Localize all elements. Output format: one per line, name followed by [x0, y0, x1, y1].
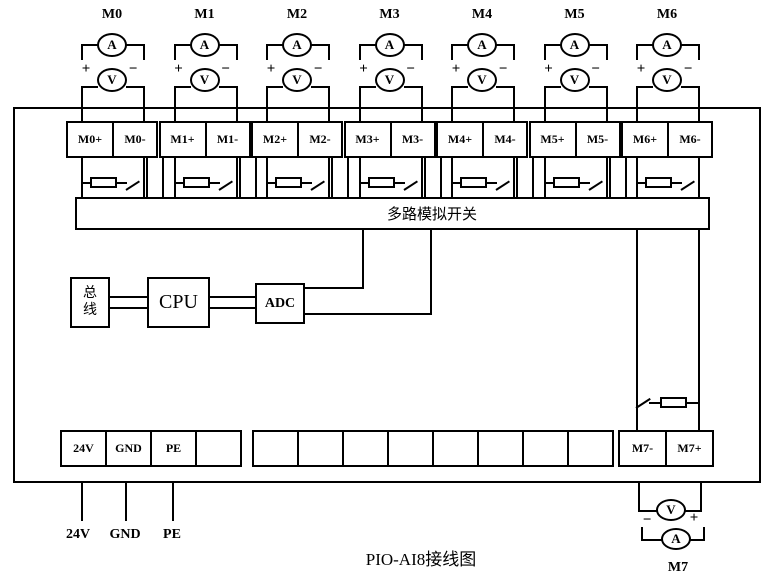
ammeter-icon: A: [375, 33, 405, 57]
terminal-plus: M0+: [66, 121, 114, 158]
ammeter-stub-left: [81, 44, 83, 60]
spare-terminal: [522, 430, 569, 467]
terminal-plus: M6+: [621, 121, 669, 158]
channel-label: M1: [175, 7, 235, 23]
adc-mux-wire-1-horizontal: [303, 287, 364, 289]
bus-cpu-wire-bottom: [110, 307, 149, 309]
wire-minus-upper: [328, 86, 330, 123]
ammeter-lead-left: [81, 44, 98, 46]
m7-ammeter-stub-right: [703, 527, 705, 541]
resistor-lead-right: [487, 182, 497, 184]
terminal-plus: M5+: [529, 121, 577, 158]
wire-minus-lower: [606, 158, 608, 199]
ammeter-lead-right: [126, 44, 143, 46]
terminal-minus: M3-: [390, 121, 436, 158]
ammeter-stub-right: [143, 44, 145, 60]
resistor-lead-left: [81, 182, 90, 184]
voltmeter-lead-right: [496, 86, 513, 88]
ammeter-stub-right: [328, 44, 330, 60]
wire-plus-lower: [81, 158, 83, 199]
power-label-24v: 24V: [58, 527, 98, 543]
power-terminal: PE: [150, 430, 197, 467]
voltmeter-lead-right: [126, 86, 143, 88]
wire-minus-upper: [236, 86, 238, 123]
wire-plus-lower: [359, 158, 361, 199]
ammeter-icon: A: [560, 33, 590, 57]
m7-resistor-icon: [660, 397, 687, 408]
adc-box: ADC: [255, 283, 305, 324]
resistor-lead-right: [395, 182, 405, 184]
resistor-icon: [553, 177, 580, 188]
ammeter-stub-left: [266, 44, 268, 60]
minus-sign: −: [309, 62, 327, 77]
terminal-plus: M2+: [251, 121, 299, 158]
spare-terminal: [252, 430, 299, 467]
wire-minus-lower: [328, 158, 330, 199]
voltmeter-lead-left: [636, 86, 653, 88]
ammeter-lead-right: [589, 44, 606, 46]
ammeter-lead-right: [311, 44, 328, 46]
minus-sign: −: [494, 62, 512, 77]
adc-mux-wire-1-vertical: [362, 228, 364, 289]
device-outline: [13, 107, 761, 483]
wire-24v: [81, 483, 83, 521]
ammeter-lead-left: [266, 44, 283, 46]
ammeter-stub-left: [174, 44, 176, 60]
power-label-pe: PE: [152, 527, 192, 543]
terminal-minus: M0-: [112, 121, 158, 158]
terminal-m7-plus: M7+: [665, 430, 714, 467]
wire-plus-upper: [174, 86, 176, 123]
channel-label-m7: M7: [656, 560, 700, 576]
power-terminal: GND: [105, 430, 152, 467]
adc-mux-wire-2-horizontal: [303, 313, 432, 315]
wire-plus-lower: [636, 158, 638, 199]
spacer-column-right: [625, 158, 627, 197]
cpu-adc-wire-bottom: [208, 307, 257, 309]
ammeter-lead-right: [404, 44, 421, 46]
resistor-icon: [183, 177, 210, 188]
wire-minus-upper: [143, 86, 145, 123]
terminal-plus: M4+: [436, 121, 484, 158]
ammeter-stub-left: [359, 44, 361, 60]
m7-ext-wire-minus: [638, 483, 640, 512]
channel-label: M6: [637, 7, 697, 23]
plus-sign: +: [447, 62, 465, 77]
ammeter-stub-right: [606, 44, 608, 60]
terminal-m7-minus: M7-: [618, 430, 667, 467]
wire-plus-lower: [174, 158, 176, 199]
resistor-icon: [90, 177, 117, 188]
wire-minus-lower: [236, 158, 238, 199]
cpu-adc-wire-top: [208, 296, 257, 298]
wire-minus-lower: [513, 158, 515, 199]
resistor-lead-left: [451, 182, 460, 184]
voltmeter-icon: V: [97, 68, 127, 92]
wire-gnd: [125, 483, 127, 521]
spare-terminal: [297, 430, 344, 467]
spacer-column-left: [424, 158, 426, 197]
resistor-lead-left: [636, 182, 645, 184]
voltmeter-lead-left: [359, 86, 376, 88]
terminal-minus: M1-: [205, 121, 251, 158]
voltmeter-icon: V: [560, 68, 590, 92]
voltmeter-icon: V: [282, 68, 312, 92]
mux-label: 多路模拟开关: [282, 203, 582, 224]
resistor-icon: [645, 177, 672, 188]
wire-minus-lower: [698, 158, 700, 199]
terminal-plus: M3+: [344, 121, 392, 158]
plus-sign: +: [77, 62, 95, 77]
voltmeter-icon: V: [375, 68, 405, 92]
wire-plus-upper: [266, 86, 268, 123]
ammeter-stub-left: [636, 44, 638, 60]
ammeter-lead-left: [174, 44, 191, 46]
channel-label: M0: [82, 7, 142, 23]
resistor-lead-right: [117, 182, 127, 184]
ammeter-icon: A: [282, 33, 312, 57]
spacer-column-right: [162, 158, 164, 197]
spacer-column-left: [516, 158, 518, 197]
m7-plus-sign: +: [687, 511, 701, 526]
terminal-minus: M5-: [575, 121, 621, 158]
m7-voltmeter-icon: V: [656, 499, 686, 521]
bus-cpu-wire-top: [110, 296, 149, 298]
voltmeter-lead-left: [81, 86, 98, 88]
m7-ext-wire-plus: [700, 483, 702, 512]
voltmeter-lead-left: [451, 86, 468, 88]
resistor-lead-left: [174, 182, 183, 184]
plus-sign: +: [262, 62, 280, 77]
wire-minus-upper: [606, 86, 608, 123]
power-terminal: [195, 430, 242, 467]
ammeter-stub-right: [698, 44, 700, 60]
wire-plus-lower: [544, 158, 546, 199]
resistor-lead-right: [672, 182, 682, 184]
wire-minus-lower: [421, 158, 423, 199]
channel-label: M5: [545, 7, 605, 23]
m7-resistor-lead-right: [686, 402, 700, 404]
adc-mux-wire-2-vertical: [430, 228, 432, 315]
wire-plus-lower: [266, 158, 268, 199]
ammeter-lead-left: [359, 44, 376, 46]
wire-plus-lower: [451, 158, 453, 199]
resistor-lead-right: [580, 182, 590, 184]
ammeter-stub-right: [513, 44, 515, 60]
spacer-column-right: [347, 158, 349, 197]
spacer-column-right: [532, 158, 534, 197]
resistor-icon: [368, 177, 395, 188]
spacer-column-left: [239, 158, 241, 197]
minus-sign: −: [402, 62, 420, 77]
spare-terminal: [567, 430, 614, 467]
spacer-column-left: [331, 158, 333, 197]
wire-minus-upper: [513, 86, 515, 123]
spacer-column-left: [146, 158, 148, 197]
ammeter-icon: A: [190, 33, 220, 57]
ammeter-icon: A: [467, 33, 497, 57]
plus-sign: +: [170, 62, 188, 77]
resistor-lead-right: [302, 182, 312, 184]
cpu-box: CPU: [147, 277, 210, 328]
ammeter-stub-right: [421, 44, 423, 60]
ammeter-icon: A: [97, 33, 127, 57]
spare-terminal: [477, 430, 524, 467]
spacer-column-left: [609, 158, 611, 197]
m7-ammeter-lead-left: [641, 539, 662, 541]
voltmeter-lead-right: [219, 86, 236, 88]
m7-minus-sign: −: [640, 513, 654, 528]
wiring-diagram: M0A+−VM0+M0-M1A+−VM1+M1-M2A+−VM2+M2-M3A+…: [0, 0, 782, 587]
voltmeter-lead-left: [544, 86, 561, 88]
ammeter-stub-right: [236, 44, 238, 60]
wire-plus-upper: [359, 86, 361, 123]
wire-plus-upper: [636, 86, 638, 123]
ammeter-stub-left: [451, 44, 453, 60]
voltmeter-lead-right: [404, 86, 421, 88]
voltmeter-lead-left: [174, 86, 191, 88]
power-label-gnd: GND: [105, 527, 145, 543]
ammeter-icon: A: [652, 33, 682, 57]
wire-plus-upper: [544, 86, 546, 123]
bus-box: 总线: [70, 277, 110, 328]
resistor-lead-right: [210, 182, 220, 184]
terminal-minus: M6-: [667, 121, 713, 158]
minus-sign: −: [217, 62, 235, 77]
ammeter-lead-right: [681, 44, 698, 46]
spacer-column-right: [440, 158, 442, 197]
m7-wire-minus: [636, 228, 638, 432]
plus-sign: +: [355, 62, 373, 77]
plus-sign: +: [632, 62, 650, 77]
channel-label: M3: [360, 7, 420, 23]
wire-minus-upper: [698, 86, 700, 123]
wire-minus-upper: [421, 86, 423, 123]
plus-sign: +: [540, 62, 558, 77]
voltmeter-lead-right: [311, 86, 328, 88]
m7-ammeter-icon: A: [661, 528, 691, 550]
resistor-lead-left: [359, 182, 368, 184]
ammeter-lead-right: [496, 44, 513, 46]
resistor-lead-left: [544, 182, 553, 184]
ammeter-lead-left: [544, 44, 561, 46]
resistor-lead-left: [266, 182, 275, 184]
terminal-plus: M1+: [159, 121, 207, 158]
voltmeter-icon: V: [652, 68, 682, 92]
wire-minus-lower: [143, 158, 145, 199]
resistor-icon: [460, 177, 487, 188]
spare-terminal: [432, 430, 479, 467]
resistor-icon: [275, 177, 302, 188]
spare-terminal: [387, 430, 434, 467]
voltmeter-lead-right: [589, 86, 606, 88]
ammeter-lead-left: [451, 44, 468, 46]
ammeter-stub-left: [544, 44, 546, 60]
terminal-minus: M4-: [482, 121, 528, 158]
wire-pe: [172, 483, 174, 521]
terminal-minus: M2-: [297, 121, 343, 158]
bus-label: 总线: [82, 286, 98, 320]
minus-sign: −: [587, 62, 605, 77]
minus-sign: −: [679, 62, 697, 77]
voltmeter-lead-right: [681, 86, 698, 88]
voltmeter-icon: V: [190, 68, 220, 92]
mux-bar: 多路模拟开关: [75, 197, 710, 230]
voltmeter-lead-left: [266, 86, 283, 88]
minus-sign: −: [124, 62, 142, 77]
voltmeter-icon: V: [467, 68, 497, 92]
ammeter-lead-left: [636, 44, 653, 46]
power-terminal: 24V: [60, 430, 107, 467]
ammeter-lead-right: [219, 44, 236, 46]
diagram-title: PIO-AI8接线图: [336, 545, 506, 570]
spacer-column-right: [255, 158, 257, 197]
m7-ammeter-lead-right: [690, 539, 703, 541]
spare-terminal: [342, 430, 389, 467]
wire-plus-upper: [451, 86, 453, 123]
wire-plus-upper: [81, 86, 83, 123]
channel-label: M4: [452, 7, 512, 23]
channel-label: M2: [267, 7, 327, 23]
